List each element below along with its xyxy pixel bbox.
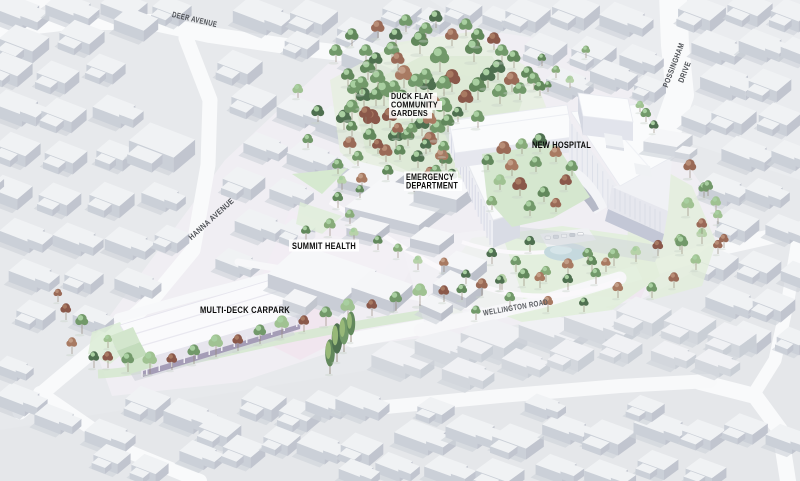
svg-text:NEW HOSPITAL: NEW HOSPITAL (532, 139, 591, 150)
svg-text:MULTI-DECK CARPARK: MULTI-DECK CARPARK (200, 304, 290, 315)
svg-text:GARDENS: GARDENS (391, 109, 428, 118)
svg-text:SUMMIT HEALTH: SUMMIT HEALTH (292, 240, 356, 251)
svg-text:DEPARTMENT: DEPARTMENT (406, 180, 458, 191)
